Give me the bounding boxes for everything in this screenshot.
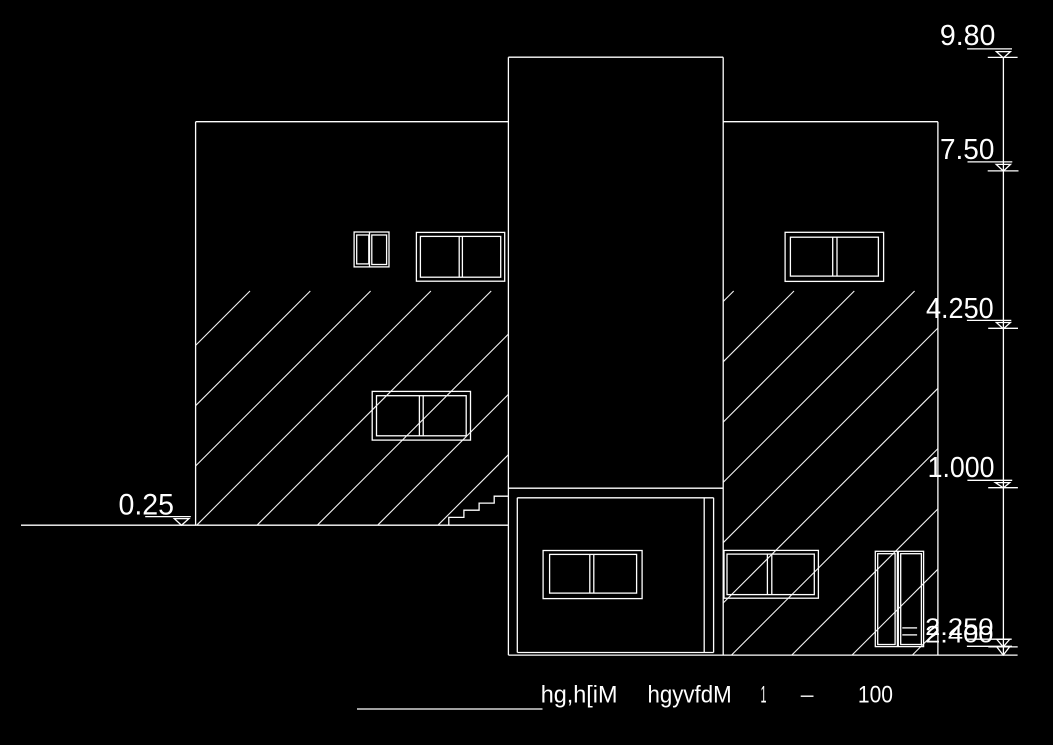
svg-text:100: 100 [858,682,893,709]
svg-text:2.400: 2.400 [925,621,993,648]
svg-text:1.000: 1.000 [928,452,995,484]
svg-text:1: 1 [761,682,767,709]
svg-text:9.80: 9.80 [940,20,996,52]
svg-text:hg,h[iM: hg,h[iM [541,682,618,709]
svg-text:hgyvfdM: hgyvfdM [648,682,732,709]
